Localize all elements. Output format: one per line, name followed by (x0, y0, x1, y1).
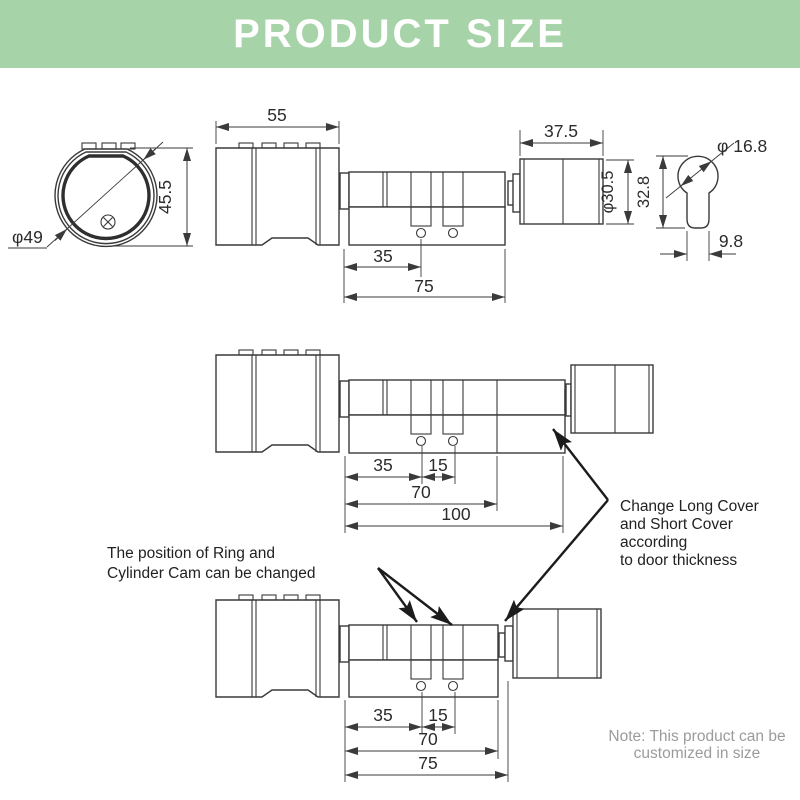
cover-note-line3: according (620, 534, 687, 551)
short-cover (520, 159, 603, 224)
cover-note-line4: to door thickness (620, 552, 737, 569)
dim-label-phi16-8: φ 16.8 (717, 136, 767, 156)
size-note-line1: Note: This product can be (608, 728, 785, 745)
dim-label-9-8: 9.8 (719, 231, 743, 251)
long-cover (571, 365, 653, 433)
cam-arrow (378, 568, 452, 625)
dim-label-100-mid: 100 (441, 504, 470, 524)
product-size-page: PRODUCT SIZE (0, 0, 800, 800)
dim-label-75-top: 75 (414, 276, 433, 296)
screw-icon (101, 215, 115, 229)
dim-label-45-5: 45.5 (155, 180, 175, 214)
dim-label-70-mid: 70 (411, 482, 431, 502)
ring-cam-note-line1: The position of Ring and (107, 545, 275, 562)
dim-label-55: 55 (267, 105, 286, 125)
dim-label-15-mid: 15 (428, 455, 447, 475)
dim-label-32-8: 32.8 (635, 176, 653, 208)
top-side-view: 55 35 (216, 105, 634, 303)
dim-label-35-mid: 35 (373, 455, 392, 475)
cover-note-line2: and Short Cover (620, 516, 733, 533)
middle-side-view: 35 15 70 100 (216, 350, 653, 533)
dim-label-phi49: φ49 (12, 227, 43, 247)
cover-note-line1: Change Long Cover (620, 498, 759, 515)
technical-drawing: φ49 45.5 55 (0, 0, 800, 800)
bottom-side-view: 35 15 70 75 (216, 595, 601, 782)
dim-label-75-bot: 75 (418, 753, 437, 773)
front-view: φ49 45.5 (8, 142, 193, 248)
dim-label-35-bot: 35 (373, 705, 392, 725)
knob-tab (102, 143, 116, 149)
dim-label-37-5: 37.5 (544, 121, 578, 141)
short-cover-arrow (505, 500, 608, 621)
dim-label-15-bot: 15 (428, 705, 447, 725)
keyhole-view: 32.8 φ 16.8 9.8 (635, 136, 767, 261)
dim-label-70-bot: 70 (418, 729, 438, 749)
knob-tab (82, 143, 96, 149)
ring-cam-note-line2: Cylinder Cam can be changed (107, 565, 316, 582)
long-cover-arrow (553, 429, 608, 500)
short-cover (513, 609, 601, 678)
dim-label-phi30-5: φ30.5 (599, 171, 617, 214)
size-note-line2: customized in size (634, 745, 761, 762)
dim-label-35-top: 35 (373, 246, 392, 266)
